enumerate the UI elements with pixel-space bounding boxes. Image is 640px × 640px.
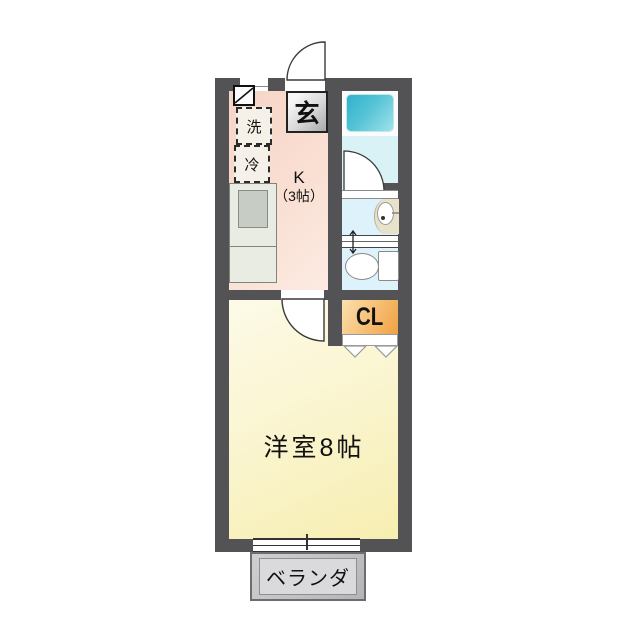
- veranda-inner: ベランダ: [259, 558, 357, 595]
- toilet-bowl-icon: [345, 253, 379, 280]
- bath-threshold: [342, 190, 398, 199]
- fridge-box: 冷: [234, 145, 270, 183]
- wall-right: [398, 78, 412, 552]
- washer-label: 洗: [246, 116, 261, 137]
- wall-mid-vertical: [328, 91, 342, 346]
- wall-left: [215, 78, 229, 552]
- folding-door-icon: [342, 345, 398, 359]
- entrance-label: 玄: [294, 94, 319, 130]
- floorplan: 玄 洗 冷 K （3帖） CL 洋室8帖: [0, 0, 640, 640]
- kitchen-label-line1: K: [268, 167, 330, 188]
- slide-arrow-icon: [347, 229, 359, 255]
- vent-diagonal-icon: [233, 85, 255, 106]
- kitchen-label: K （3帖）: [268, 167, 330, 206]
- veranda: ベランダ: [250, 552, 366, 601]
- kitchen-sink: [238, 190, 268, 228]
- fridge-label: 冷: [244, 154, 259, 175]
- bathtub-icon: [347, 95, 393, 131]
- washer-box: 洗: [236, 107, 272, 145]
- balcony-window-tick: [306, 534, 308, 550]
- closet-label: CL: [356, 303, 383, 332]
- main-room-label: 洋室8帖: [229, 428, 399, 464]
- washbasin-faucet-icon: [392, 212, 399, 214]
- entrance-door-arc-icon: [283, 34, 331, 82]
- bath-door-arc-icon: [342, 149, 388, 193]
- toilet-tank-icon: [378, 251, 399, 281]
- room-door-arc-icon: [280, 290, 328, 344]
- entrance-mat: 玄: [286, 91, 328, 133]
- kitchen-label-line2: （3帖）: [268, 188, 330, 206]
- counter-divider: [229, 246, 277, 247]
- closet: CL: [342, 300, 398, 334]
- veranda-label: ベランダ: [266, 562, 350, 591]
- washbasin-drain-icon: [381, 216, 385, 220]
